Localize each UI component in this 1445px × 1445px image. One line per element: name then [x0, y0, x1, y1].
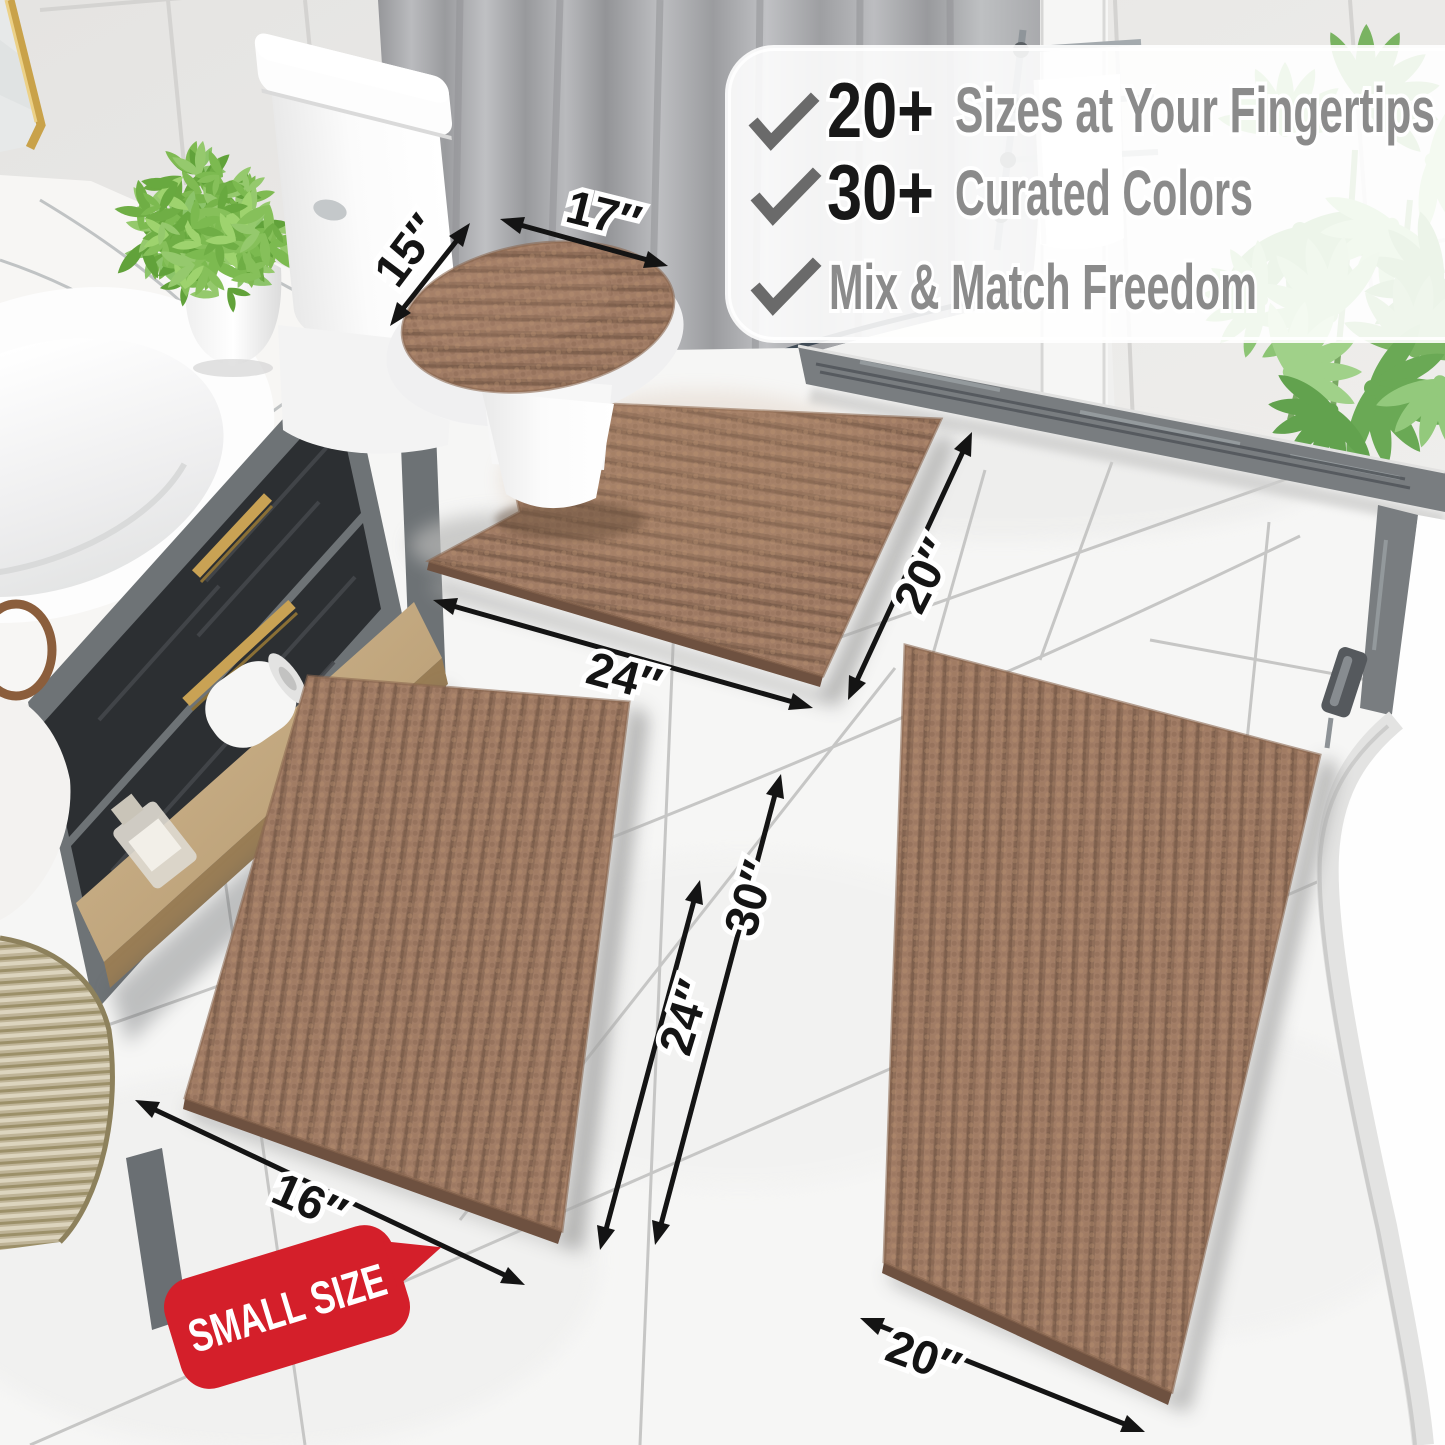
- svg-text:Sizes at Your Fingertips: Sizes at Your Fingertips: [955, 74, 1435, 146]
- svg-text:Curated Colors: Curated Colors: [955, 157, 1253, 229]
- svg-text:Mix & Match Freedom: Mix & Match Freedom: [829, 251, 1257, 323]
- svg-text:30+: 30+: [827, 148, 934, 236]
- svg-text:20+: 20+: [827, 66, 934, 154]
